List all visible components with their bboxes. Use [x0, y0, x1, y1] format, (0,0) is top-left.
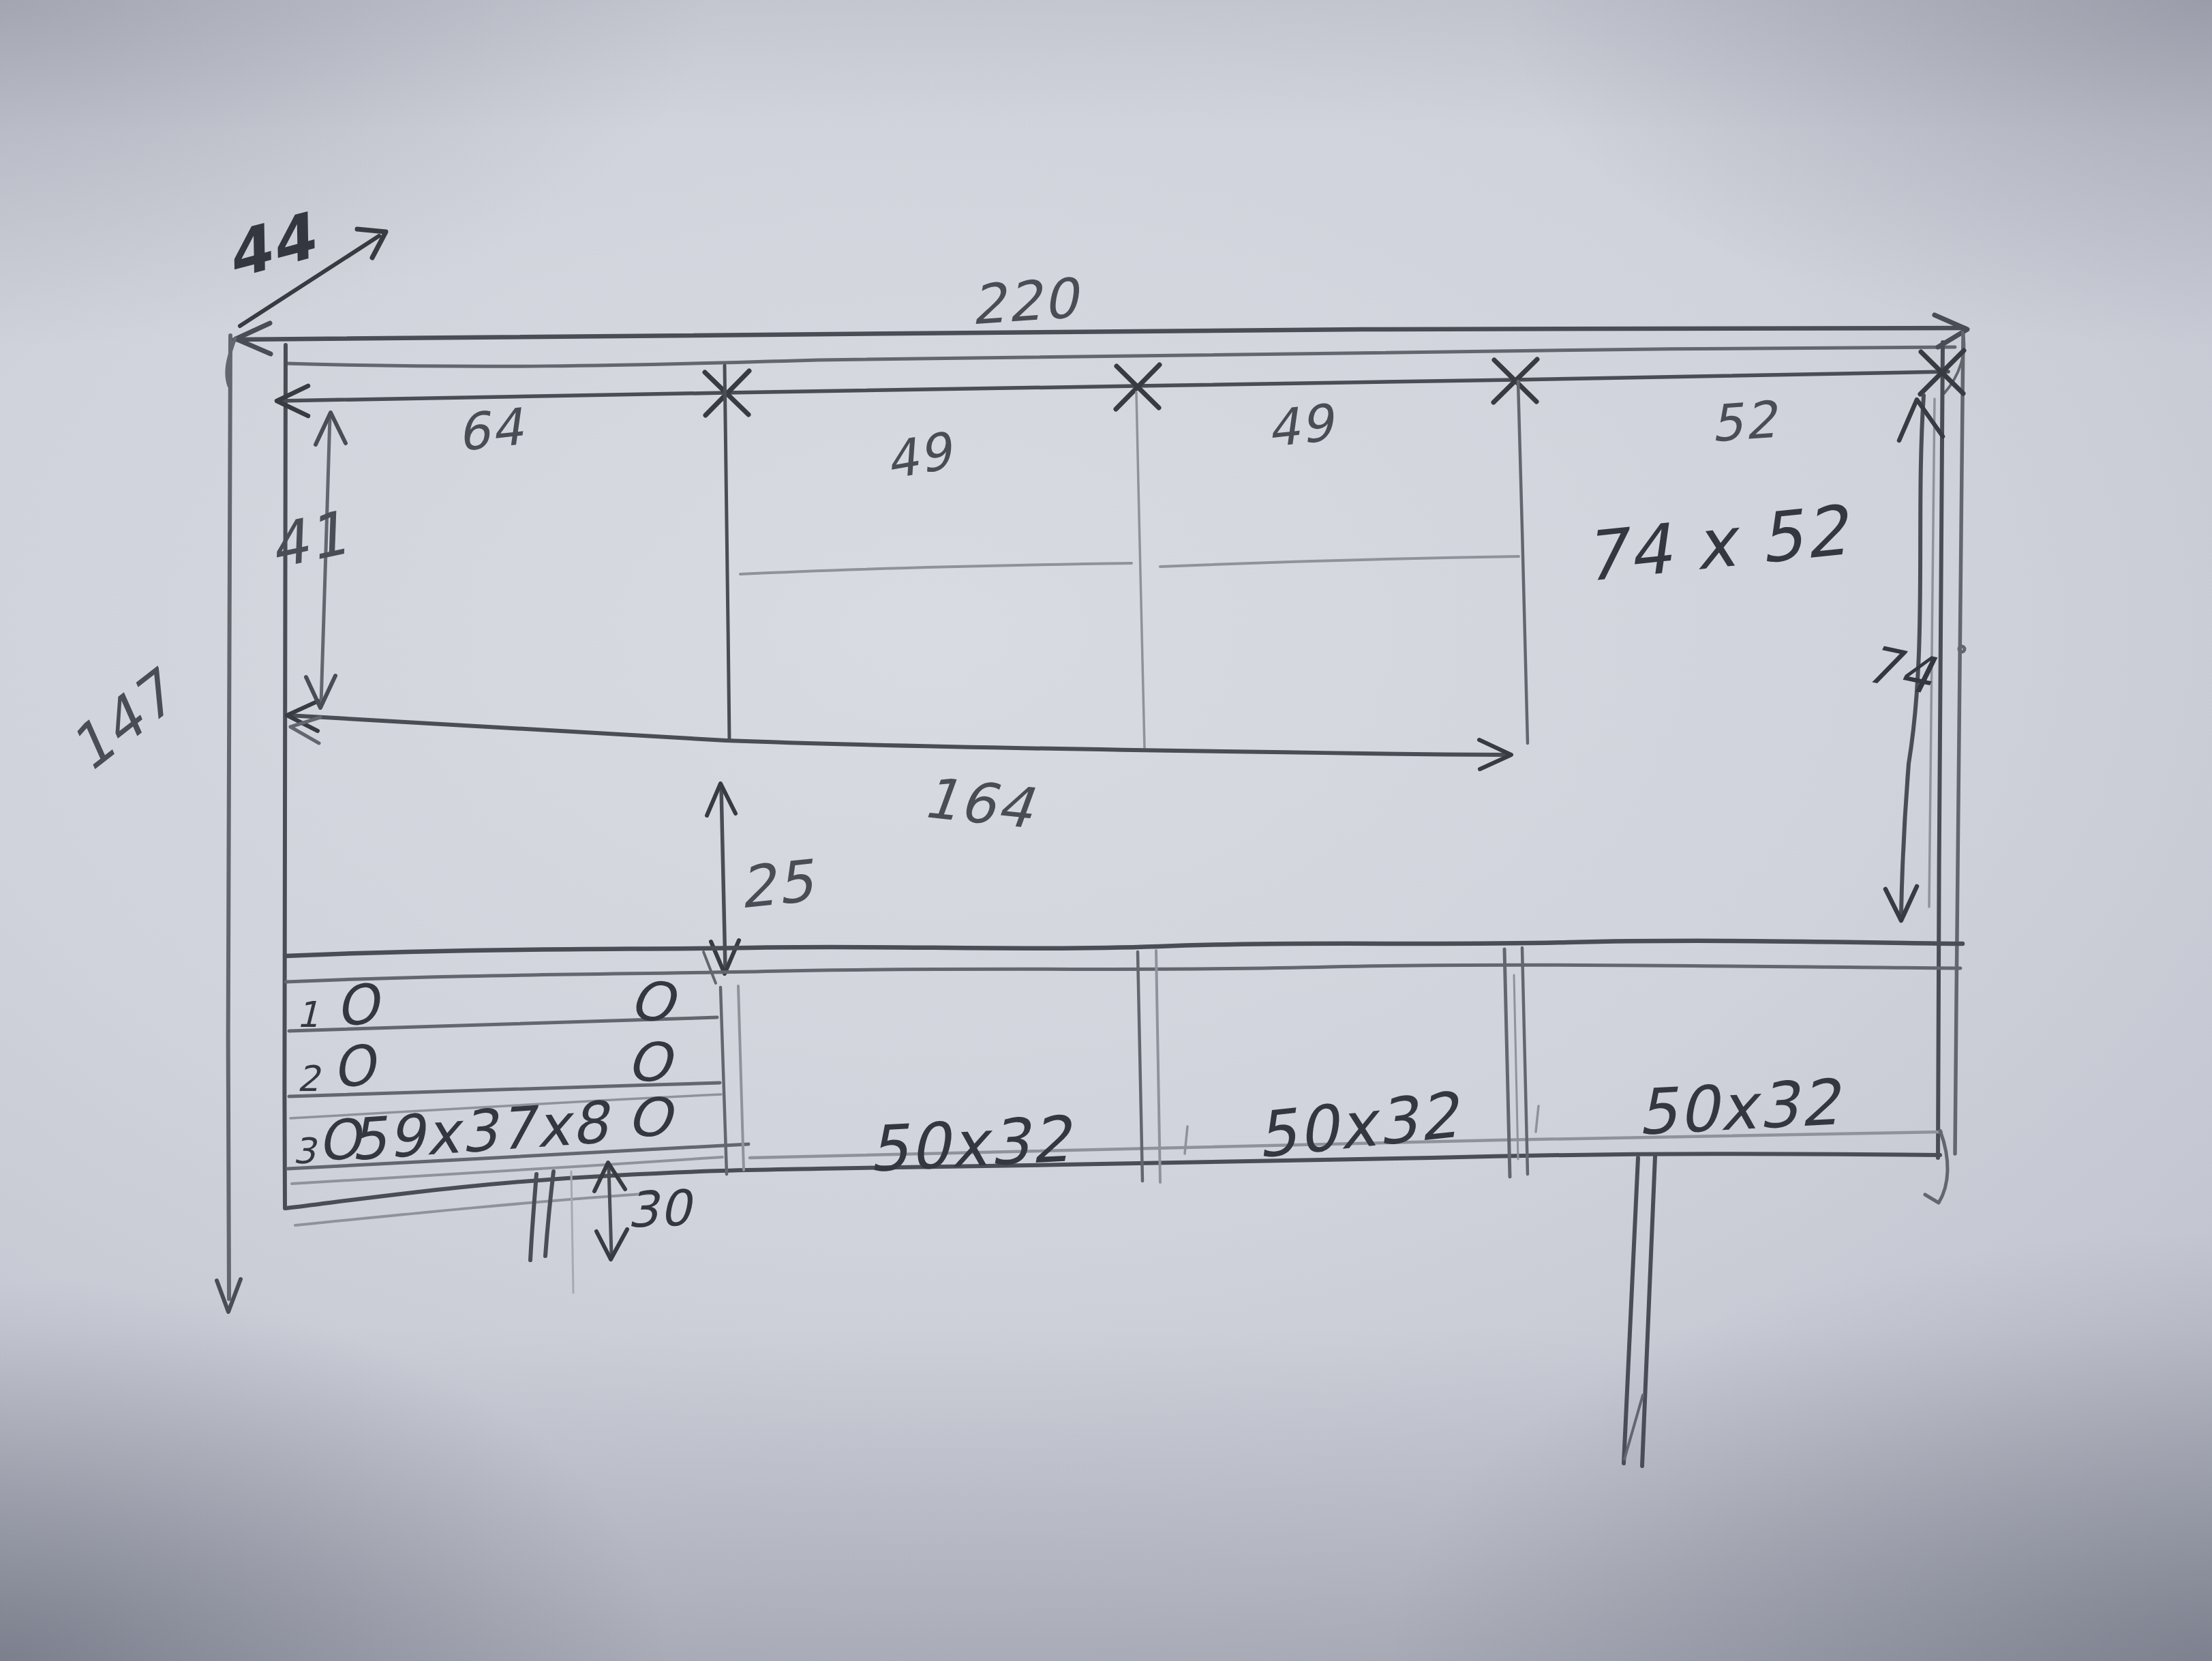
drawer-unit: 1 2 3 O O O O O O 59x37x8	[288, 967, 748, 1184]
faint-shelf-left	[740, 563, 1132, 574]
left-leg-stroke-2	[545, 1171, 554, 1256]
shelf-line	[288, 715, 1509, 755]
counter-line-2	[286, 965, 1960, 982]
counter-line-1	[286, 941, 1963, 956]
bottom-left-extra-line	[295, 1193, 653, 1225]
gap-arrow-extra-stroke	[703, 952, 716, 983]
divider-1	[725, 365, 729, 740]
height-dim-line	[228, 335, 230, 1299]
plinth-height-label: 30	[626, 1179, 695, 1238]
drawer-size-label: 59x37x8	[348, 1089, 614, 1174]
tick-mark-2	[1536, 1106, 1539, 1132]
shelf-dimension: 164	[287, 701, 1511, 841]
segment-label-52: 52	[1708, 390, 1781, 453]
depth-label: 44	[217, 200, 323, 294]
left-leg-ghost-line	[571, 1171, 573, 1293]
upper-left-height-label: 41	[262, 498, 354, 583]
top-edge-inner	[286, 347, 1955, 366]
tick-mark-1	[1185, 1126, 1187, 1154]
faint-shelf-right	[1160, 556, 1519, 567]
plinth-dim-line	[609, 1167, 611, 1255]
depth-arrow-head-icon	[357, 229, 386, 258]
segment-label-49b: 49	[1264, 393, 1339, 458]
drawer-number-1: 1	[296, 994, 320, 1035]
drawer-number-3: 3	[292, 1131, 318, 1171]
compartment-label-3: 50x32	[1635, 1066, 1844, 1150]
legs-and-plinth: 30	[530, 1156, 1655, 1466]
segment-label-49a: 49	[881, 421, 959, 490]
upper-left-height-dimension: 41	[262, 413, 354, 708]
right-inner-height-label: 74	[1860, 633, 1941, 706]
top-edge-outer	[234, 327, 1965, 340]
knob-row3-right-icon: O	[624, 1083, 678, 1152]
right-leg-stroke-2	[1642, 1156, 1655, 1466]
shelf-gap-label: 25	[736, 847, 819, 921]
right-compartment-label: 74 x 52	[1579, 490, 1855, 598]
segment-dim-line	[277, 372, 1948, 401]
comp-divider-2c	[1514, 975, 1518, 1159]
furniture-sketch: 147 44 220 64 49 49 52	[0, 0, 2212, 1661]
drawer-right-edge-b	[738, 986, 744, 1170]
right-edge-inner	[1938, 342, 1943, 1158]
comp-divider-2a	[1504, 949, 1510, 1177]
divider-2-faint	[1136, 392, 1145, 748]
left-leg-stroke-1	[530, 1174, 536, 1260]
knob-row2-left-icon: O	[328, 1032, 384, 1101]
knob-row1-left-icon: O	[332, 971, 386, 1039]
shelf-gap-dimension: 25	[703, 783, 819, 983]
knob-row1-right-icon: O	[626, 967, 682, 1036]
drawer-number-2: 2	[297, 1058, 321, 1099]
shelf-width-label: 164	[920, 765, 1037, 841]
total-height-dimension: 147	[56, 335, 241, 1312]
left-edge	[284, 345, 286, 1208]
segment-dimension-line: 64 49 49 52	[277, 350, 1964, 490]
segment-label-64: 64	[454, 397, 527, 462]
right-edge-outer	[1955, 334, 1963, 1154]
depth-dimension: 44	[217, 200, 386, 326]
divider-3	[1518, 381, 1528, 743]
upper-dividers	[725, 365, 1528, 748]
right-inner-height-dimension: 74	[1860, 395, 1965, 921]
comp-divider-1a	[1138, 952, 1142, 1181]
total-height-label: 147	[56, 656, 193, 784]
compartment-label-1: 50x32	[866, 1103, 1075, 1186]
gap-dim-line	[721, 787, 725, 968]
total-width-label: 220	[969, 266, 1084, 337]
